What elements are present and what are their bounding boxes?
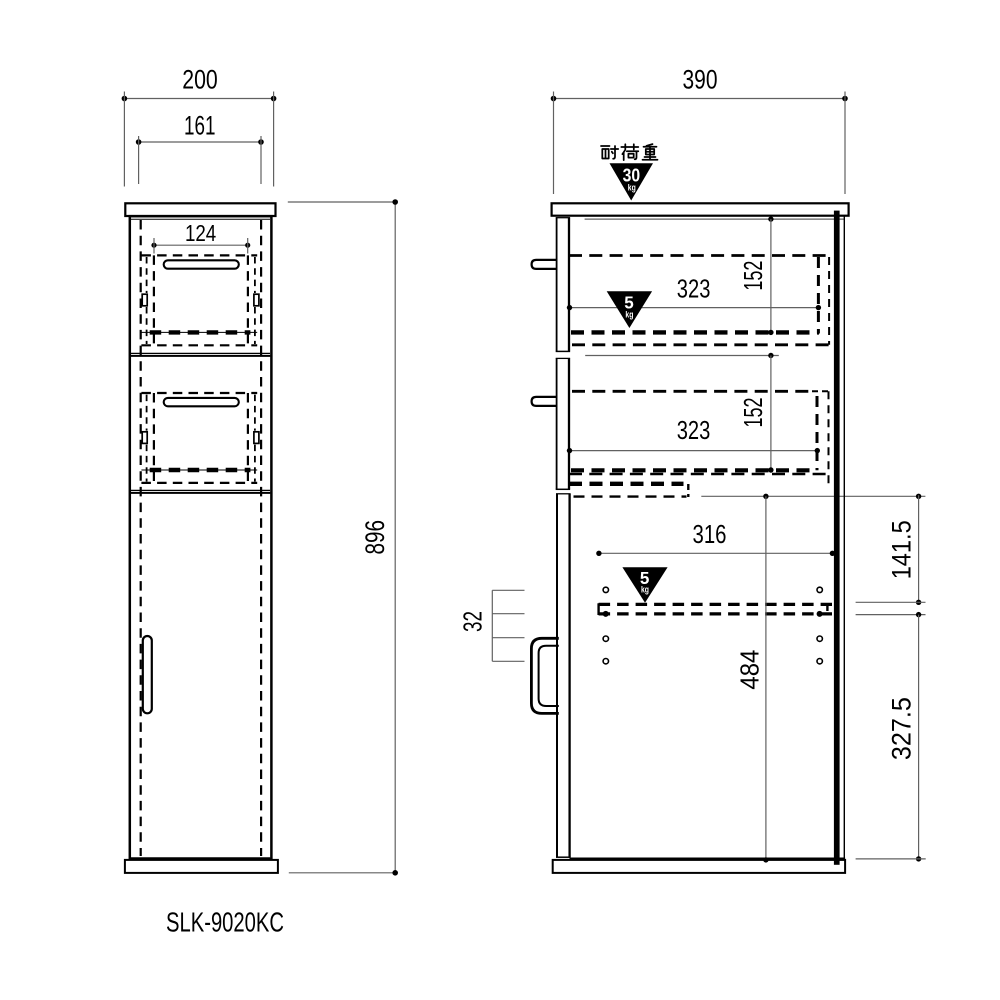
- svg-text:kg: kg: [641, 585, 649, 595]
- svg-text:200: 200: [182, 65, 218, 95]
- svg-text:323: 323: [677, 415, 711, 445]
- svg-text:161: 161: [184, 110, 216, 140]
- svg-text:152: 152: [738, 261, 768, 291]
- svg-text:484: 484: [735, 650, 765, 690]
- svg-text:316: 316: [693, 519, 727, 549]
- svg-text:124: 124: [185, 220, 216, 246]
- svg-text:390: 390: [683, 65, 718, 95]
- svg-text:323: 323: [677, 273, 711, 303]
- svg-text:141.5: 141.5: [887, 520, 917, 579]
- svg-text:32: 32: [458, 611, 488, 632]
- svg-text:152: 152: [738, 398, 768, 428]
- svg-text:kg: kg: [628, 182, 636, 192]
- svg-text:SLK-9020KC: SLK-9020KC: [166, 907, 284, 938]
- svg-text:896: 896: [360, 520, 390, 555]
- svg-text:327.5: 327.5: [886, 697, 916, 760]
- svg-text:kg: kg: [625, 309, 633, 319]
